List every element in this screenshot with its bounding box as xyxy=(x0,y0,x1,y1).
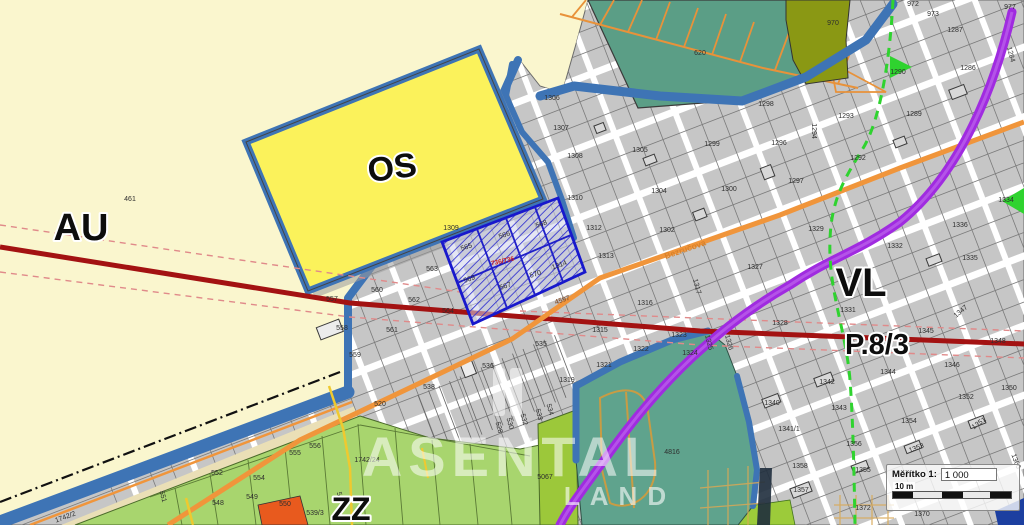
parcel-number-label: 1327 xyxy=(747,264,763,271)
parcel-number-label: 1348 xyxy=(990,338,1006,345)
parcel-number-label: 1322 xyxy=(633,346,649,353)
parcel-number-label: 538 xyxy=(423,384,435,391)
parcel-number-label: 1298 xyxy=(758,101,774,108)
parcel-number-label: 535 xyxy=(535,341,547,348)
parcel-number-label: 1372 xyxy=(855,505,871,512)
parcel-number-label: 1331 xyxy=(840,307,856,314)
parcel-number-label: 972 xyxy=(907,1,919,8)
parcel-number-label: 1343 xyxy=(831,405,847,412)
parcel-number-label: 560 xyxy=(371,287,383,294)
parcel-number-label: 1346 xyxy=(944,362,960,369)
parcel-number-label: 1329 xyxy=(808,226,824,233)
zoning-map-canvas[interactable]: 4611306130713081305131013091312131313021… xyxy=(0,0,1024,525)
parcel-number-label: 977 xyxy=(1004,4,1016,11)
parcel-number-label: 4816 xyxy=(664,449,680,456)
parcel-number-label: 1304 xyxy=(651,188,667,195)
parcel-number-label: 564 xyxy=(442,308,454,315)
parcel-number-label: 520 xyxy=(374,401,386,408)
parcel-number-label: 1356 xyxy=(846,441,862,448)
parcel-number-label: 1355 xyxy=(855,467,871,474)
parcel-number-label: 1297 xyxy=(788,178,804,185)
zone-label-os: OS xyxy=(365,146,419,190)
parcel-number-label: 1336 xyxy=(952,222,968,229)
parcel-number-label: 1344 xyxy=(880,369,896,376)
parcel-number-label: 1307 xyxy=(553,125,569,132)
parcel-number-label: 1309 xyxy=(443,225,459,232)
scale-bar xyxy=(892,491,1012,499)
parcel-number-label: 1294 xyxy=(810,123,817,139)
parcel-number-label: 1352 xyxy=(958,394,974,401)
zone-label-au: AU xyxy=(54,207,109,249)
parcel-number-label: 562 xyxy=(408,297,420,304)
parcel-number-label: 1299 xyxy=(704,141,720,148)
parcel-number-label: 1340 xyxy=(764,400,780,407)
watermark-title: ASENTAL xyxy=(362,425,664,488)
parcel-number-label: 556 xyxy=(309,443,321,450)
parcel-number-label: 1342 xyxy=(819,379,835,386)
parcel-number-label: 1334 xyxy=(998,197,1014,204)
parcel-number-label: 1286 xyxy=(960,65,976,72)
parcel-number-label: 1313 xyxy=(598,253,614,260)
parcel-number-label: 1302 xyxy=(659,227,675,234)
parcel-number-label: 1328 xyxy=(772,320,788,327)
parcel-number-label: 1310 xyxy=(567,195,583,202)
parcel-number-label: 536 xyxy=(482,363,494,370)
parcel-number-label: 1357 xyxy=(793,487,809,494)
zone-label-vl: VL xyxy=(835,261,886,305)
parcel-number-label: 561 xyxy=(386,327,398,334)
watermark-logo-icon xyxy=(510,368,522,416)
parcel-number-label: 559 xyxy=(349,352,361,359)
parcel-number-label: 1315 xyxy=(592,327,608,334)
parcel-number-label: 1293 xyxy=(838,113,854,120)
zone-label-zz: ZZ xyxy=(331,491,370,525)
parcel-number-label: 550 xyxy=(279,501,291,508)
parcel-number-label: 1350 xyxy=(1001,385,1017,392)
parcel-number-label: 973 xyxy=(927,11,939,18)
parcel-number-label: 1341/1 xyxy=(778,426,800,433)
zone-label-p83: P.8/3 xyxy=(845,329,909,361)
watermark-logo-icon xyxy=(493,368,505,416)
parcel-number-label: 548 xyxy=(212,500,224,507)
parcel-number-label: 1296 xyxy=(771,140,787,147)
parcel-number-label: 1287 xyxy=(947,27,963,34)
parcel-number-label: 1290 xyxy=(890,69,906,76)
parcel-number-label: 1370 xyxy=(914,511,930,518)
parcel-number-label: 970 xyxy=(827,20,839,27)
parcel-number-label: 554 xyxy=(253,475,265,482)
parcel-number-label: 1332 xyxy=(887,243,903,250)
parcel-number-label: 1316 xyxy=(637,300,653,307)
parcel-number-label: 620 xyxy=(694,50,706,57)
parcel-number-label: 549 xyxy=(246,494,258,501)
parcel-number-label: 1358 xyxy=(792,463,808,470)
parcel-number-label: 1306 xyxy=(544,95,560,102)
scale-input[interactable]: 1 000 xyxy=(941,468,997,481)
parcel-number-label: 555 xyxy=(289,450,301,457)
parcel-number-label: 1324 xyxy=(682,350,698,357)
parcel-number-label: 1312 xyxy=(586,225,602,232)
parcel-number-label: 1308 xyxy=(567,153,583,160)
parcel-number-label: 563 xyxy=(426,266,438,273)
parcel-number-label: 1335 xyxy=(962,255,978,262)
parcel-number-label: 1289 xyxy=(906,111,922,118)
parcel-number-label: 552 xyxy=(211,470,223,477)
parcel-number-label: 539/3 xyxy=(306,510,324,517)
scale-label: Měřítko 1: xyxy=(892,469,937,480)
parcel-number-label: 1323 xyxy=(671,332,687,339)
parcel-number-label: 1305 xyxy=(632,147,648,154)
scale-widget: Měřítko 1: 1 000 10 m xyxy=(886,464,1020,511)
parcel-number-label: 558 xyxy=(336,325,348,332)
parcel-number-label: 1354 xyxy=(901,418,917,425)
map-viewport: 4611306130713081305131013091312131313021… xyxy=(0,0,1024,525)
parcel-number-label: 1319 xyxy=(559,377,575,384)
parcel-number-label: 461 xyxy=(124,196,136,203)
parcel-number-label: 1321 xyxy=(596,362,612,369)
parcel-number-label: 557 xyxy=(326,296,338,303)
watermark-subtitle: LAND xyxy=(564,481,676,511)
parcel-number-label: 1292 xyxy=(850,155,866,162)
parcel-number-label: 1345 xyxy=(918,328,934,335)
parcel-number-label: 1300 xyxy=(721,186,737,193)
scale-bar-label: 10 m xyxy=(893,482,915,491)
